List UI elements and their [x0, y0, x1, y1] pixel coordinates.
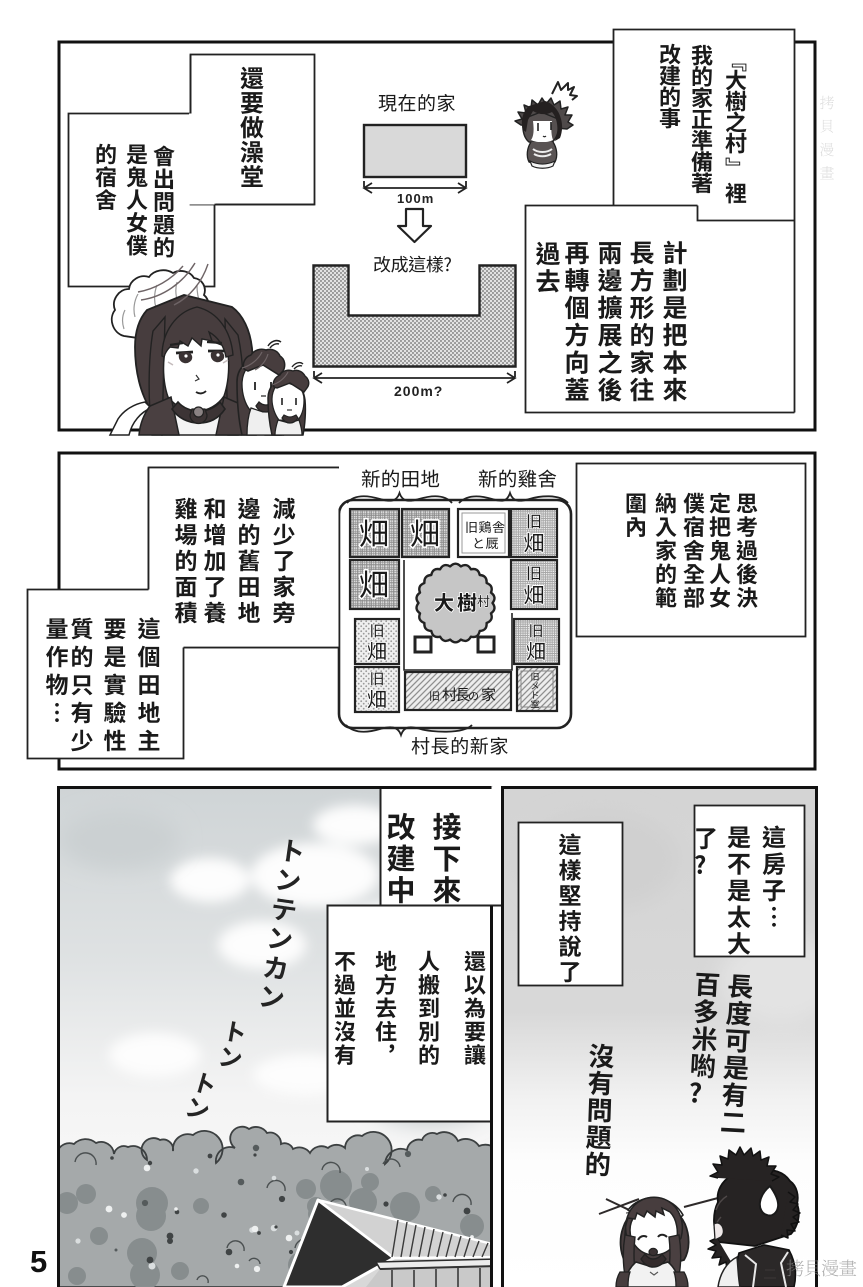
svg-text:100m: 100m: [397, 191, 434, 206]
svg-text:200m?: 200m?: [394, 383, 443, 399]
svg-text:5: 5: [30, 1244, 47, 1279]
